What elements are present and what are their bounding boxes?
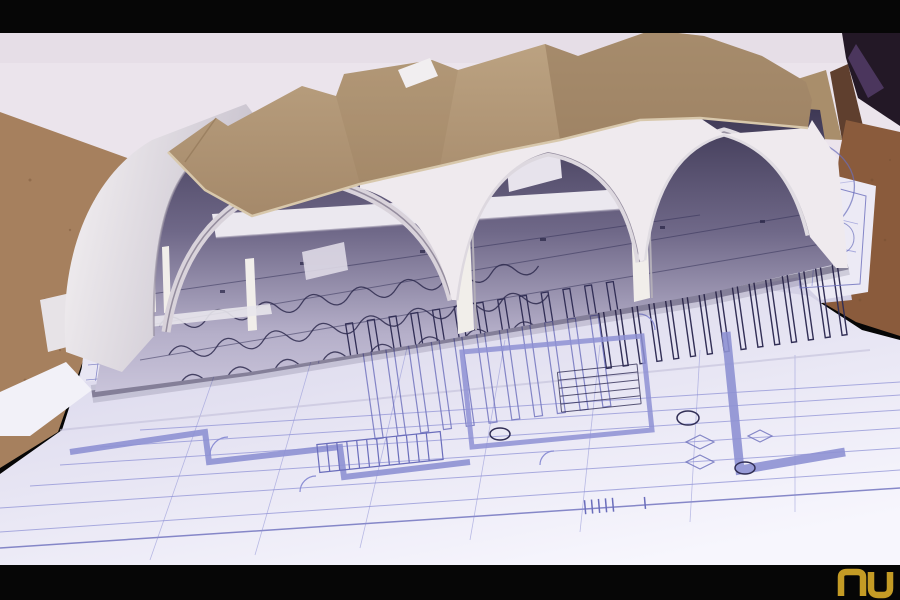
letterbox-bottom [0, 565, 900, 600]
slide-photo: Letterboxed slide photograph of an archi… [0, 0, 900, 600]
photo-canvas [0, 0, 900, 600]
letterbox-top [0, 0, 900, 33]
